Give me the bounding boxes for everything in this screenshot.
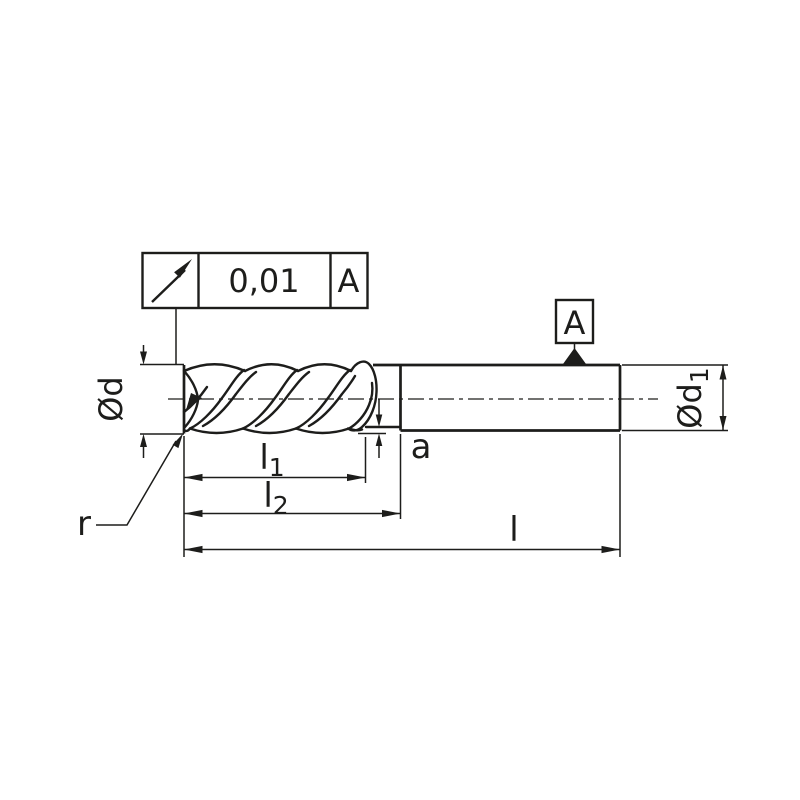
- tolerance-value: 0,01: [228, 262, 299, 300]
- datum-letter: A: [564, 304, 586, 342]
- tolerance-datum-ref: A: [338, 262, 360, 300]
- dim-a-label: a: [411, 427, 432, 467]
- dim-d-label: Ød: [92, 376, 130, 422]
- end-mill-drawing: 0,01 A A: [0, 0, 800, 800]
- technical-drawing-page: 0,01 A A: [0, 0, 800, 800]
- dim-r-label: r: [77, 504, 91, 544]
- dim-l-label: l: [509, 510, 518, 550]
